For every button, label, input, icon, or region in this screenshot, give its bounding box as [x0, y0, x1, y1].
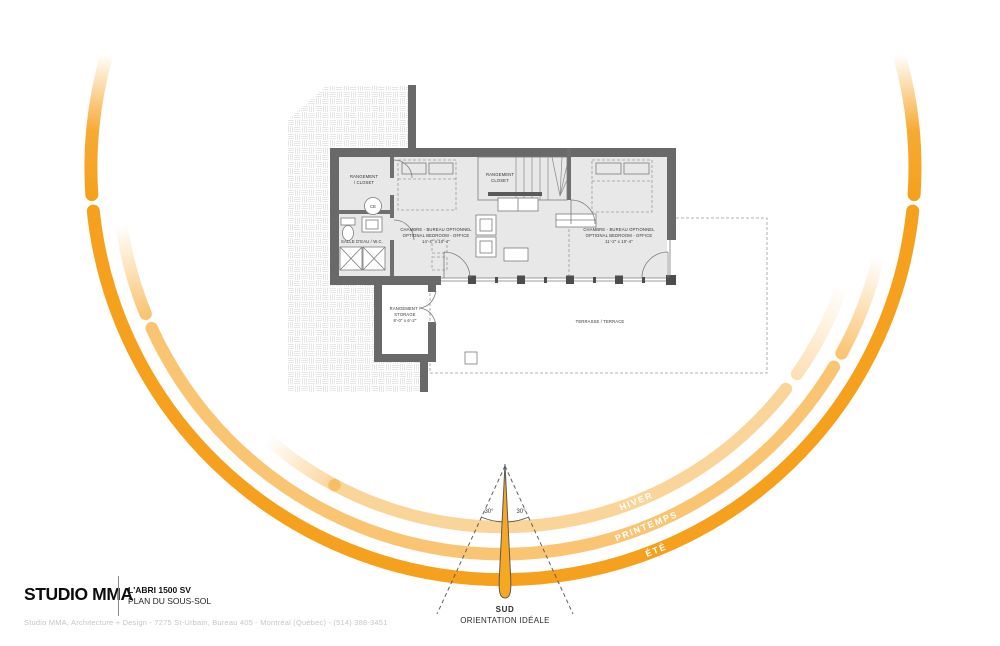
coffee-table	[504, 248, 528, 261]
winter-arc-label: HIVER	[618, 490, 655, 513]
svg-text:CLOSET: CLOSET	[491, 178, 509, 183]
spring-arc-fade-left	[121, 225, 145, 314]
south-label: SUD	[496, 605, 515, 614]
svg-text:OPTIONAL BEDROOM - OFFICE: OPTIONAL BEDROOM - OFFICE	[403, 233, 470, 238]
title-block: STUDIO MMA L'ABRI 1500 SV PLAN DU SOUS-S…	[0, 572, 480, 646]
svg-text:CHAMBRE - BUREAU OPTIONNEL: CHAMBRE - BUREAU OPTIONNEL	[400, 227, 472, 232]
footer-credit: Studio MMA, Architecture + Design - 7275…	[24, 618, 388, 627]
wall-stub-south	[420, 362, 428, 392]
angle-label-left: 30°	[484, 509, 494, 515]
studio-logo: STUDIO MMA	[24, 584, 133, 605]
plan-graphic: HIVER PRINTEMPS ÉTÉ	[0, 0, 1000, 646]
terrace-pier	[465, 352, 477, 364]
side-table-1	[476, 215, 496, 235]
svg-text:OPTIONAL BEDROOM - OFFICE: OPTIONAL BEDROOM - OFFICE	[586, 233, 653, 238]
svg-text:STORAGE: STORAGE	[394, 312, 416, 317]
water-heater-label: CE	[370, 204, 376, 209]
project-title: L'ABRI 1500 SV	[128, 585, 191, 595]
title-divider	[118, 576, 119, 616]
svg-text:CHAMBRE - BUREAU OPTIONNEL: CHAMBRE - BUREAU OPTIONNEL	[583, 227, 655, 232]
svg-text:8'-0" x 6'-2": 8'-0" x 6'-2"	[393, 318, 416, 323]
vanity	[362, 217, 382, 232]
svg-text:RANGEMENT: RANGEMENT	[350, 174, 378, 179]
stair-closet-label: RANGEMENT	[486, 172, 514, 177]
drawing-sheet: HIVER PRINTEMPS ÉTÉ	[0, 0, 1000, 646]
summer-arc-fade-left	[91, 54, 107, 194]
angle-label-right: 30°	[516, 509, 526, 515]
sheet-title: PLAN DU SOUS-SOL	[128, 596, 211, 606]
floor-plan: RANGEMENT CLOSET RANGEMENT / CLOSET CE S…	[288, 85, 767, 392]
side-table-2	[476, 237, 496, 257]
bathroom-label: SALLE D'EAU / W.C.	[341, 239, 383, 244]
svg-text:11'-2" x 10'-4": 11'-2" x 10'-4"	[605, 239, 633, 244]
stair-rail	[488, 192, 542, 196]
corner-column	[666, 275, 676, 285]
svg-text:/ CLOSET: / CLOSET	[354, 180, 375, 185]
wall-stub-north	[408, 85, 416, 148]
terrace-label: TERRASSE / TERRACE	[576, 319, 625, 324]
svg-text:14'-4" x 10'-4": 14'-4" x 10'-4"	[422, 239, 450, 244]
winter-arc-fade-right	[797, 285, 842, 374]
svg-text:RANGEMENT /: RANGEMENT /	[390, 306, 421, 311]
summer-arc-fade-right	[899, 54, 915, 194]
toilet-tank	[341, 218, 355, 225]
sofa	[556, 214, 596, 227]
winter-arc-main	[335, 389, 786, 527]
